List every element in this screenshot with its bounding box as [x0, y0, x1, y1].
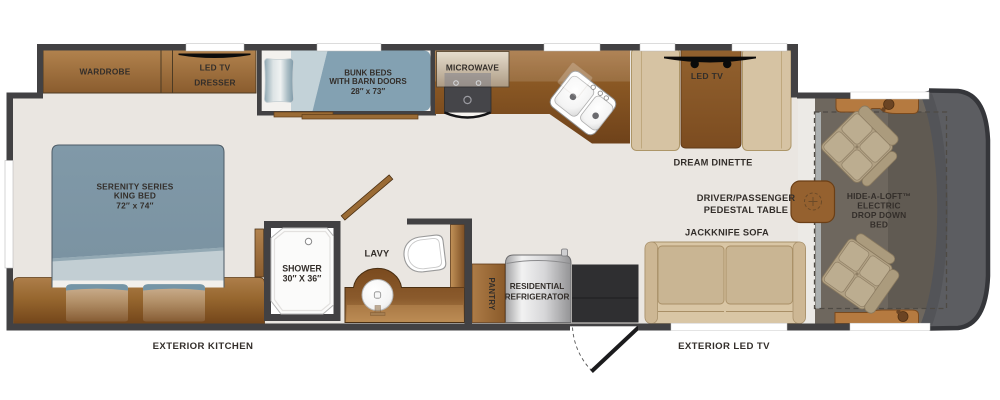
svg-text:PEDESTAL TABLE: PEDESTAL TABLE	[704, 205, 788, 215]
svg-text:DRESSER: DRESSER	[194, 78, 236, 88]
svg-text:28″ x 73″: 28″ x 73″	[351, 87, 386, 96]
svg-text:MICROWAVE: MICROWAVE	[446, 63, 500, 73]
svg-text:EXTERIOR KITCHEN: EXTERIOR KITCHEN	[153, 341, 254, 352]
svg-text:DRIVER/PASSENGER: DRIVER/PASSENGER	[697, 193, 796, 203]
svg-text:30″ X 36″: 30″ X 36″	[283, 274, 323, 284]
svg-text:HIDE-A-LOFT™: HIDE-A-LOFT™	[847, 191, 911, 201]
svg-text:PANTRY: PANTRY	[487, 278, 496, 311]
svg-text:LED TV: LED TV	[200, 63, 231, 73]
svg-text:KING BED: KING BED	[114, 191, 156, 201]
svg-text:72″ x 74″: 72″ x 74″	[116, 201, 153, 211]
svg-text:ELECTRIC: ELECTRIC	[857, 201, 900, 211]
svg-text:LAVY: LAVY	[365, 249, 391, 259]
svg-text:EXTERIOR LED TV: EXTERIOR LED TV	[678, 341, 770, 352]
svg-text:WARDROBE: WARDROBE	[80, 67, 131, 77]
svg-text:SHOWER: SHOWER	[282, 264, 322, 274]
svg-text:DREAM DINETTE: DREAM DINETTE	[673, 158, 752, 168]
svg-text:WITH BARN DOORS: WITH BARN DOORS	[329, 77, 407, 86]
svg-text:LED TV: LED TV	[691, 71, 723, 81]
svg-text:RESIDENTIAL: RESIDENTIAL	[510, 282, 565, 291]
svg-text:BED: BED	[870, 220, 888, 230]
svg-text:DROP DOWN: DROP DOWN	[852, 210, 907, 220]
svg-text:JACKKNIFE SOFA: JACKKNIFE SOFA	[685, 228, 769, 238]
svg-text:REFRIGERATOR: REFRIGERATOR	[505, 293, 570, 302]
